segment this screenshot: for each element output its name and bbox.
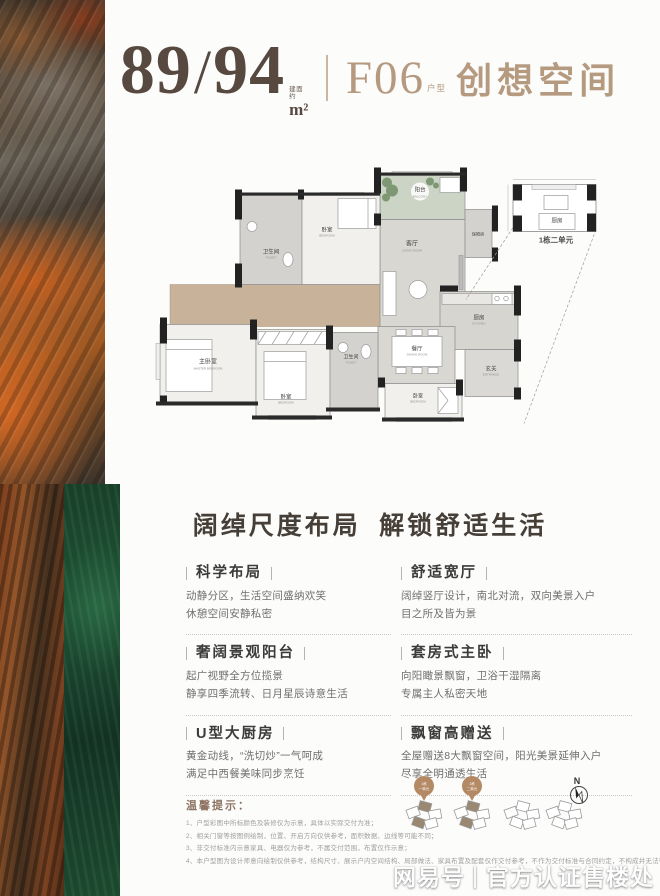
area-number-secondary: 94 xyxy=(213,36,285,106)
features-grid: 科学布局 动静分区，生活空间盛纳欢笑 休憩空间安静私密 舒适宽厅 阔绰竖厅设计，… xyxy=(186,566,632,796)
room-label-toilet-top: 卫生间 xyxy=(263,248,280,256)
svg-text:BEDROOM: BEDROOM xyxy=(278,401,294,405)
title-bar-left xyxy=(401,727,402,740)
title-bar-left xyxy=(186,727,187,740)
room-label-nanny: 保姆房 xyxy=(472,231,485,238)
area-unit-block: 建面 约 m² xyxy=(289,86,308,118)
feature-line: 满足中西餐美味同步烹饪 xyxy=(186,765,391,783)
poster: 89 / 94 建面 约 m² F06 户型 创想空间 xyxy=(0,0,660,896)
feature-line: 全屋赠送8大飘窗空间，阳光美景延伸入户 xyxy=(401,747,632,765)
building-cluster-1: 1栋 一单元 xyxy=(406,776,442,829)
building-cluster-4 xyxy=(546,801,582,830)
feature-title: U型大厨房 xyxy=(196,727,274,742)
room-label-inset-kitchen: 厨房 xyxy=(551,217,563,225)
feature-card-science-layout: 科学布局 动静分区，生活空间盛纳欢笑 休憩空间安静私密 xyxy=(186,566,391,635)
feature-line: 目之所及皆为景 xyxy=(401,605,632,623)
feature-card-u-kitchen: U型大厨房 黄金动线，“洗切炒”一气呵成 满足中西餐美味同步烹饪 xyxy=(186,727,391,796)
feature-line: 动静分区，生活空间盛纳欢笑 xyxy=(186,587,391,605)
feature-title: 科学布局 xyxy=(196,566,262,581)
svg-text:1栋: 1栋 xyxy=(469,781,475,786)
svg-text:KITCHEN: KITCHEN xyxy=(472,322,485,326)
watermark: 网易号 | 官方认证售楼处 xyxy=(393,858,654,892)
title-bar-right xyxy=(503,727,504,740)
building-cluster-2: 1栋 二单元 xyxy=(454,776,490,829)
unit-inset: 厨房 1栋二单元 xyxy=(508,180,596,245)
room-label-bedroom-mid: 卧室 xyxy=(280,393,292,401)
svg-text:ENTRANCE: ENTRANCE xyxy=(483,373,500,377)
title-bar-right xyxy=(271,567,272,580)
watermark-brand: 网易号 xyxy=(393,858,465,892)
texture-strip-top-streaks xyxy=(0,0,105,484)
unit-name: 创想空间 xyxy=(456,63,620,99)
svg-text:DINING ROOM: DINING ROOM xyxy=(407,353,428,357)
svg-text:LIVING ROOM: LIVING ROOM xyxy=(402,249,423,253)
feature-title: 飘窗高赠送 xyxy=(411,727,494,742)
unit-code-suffix: 户型 xyxy=(427,82,446,94)
feature-title: 奢阔景观阳台 xyxy=(196,646,295,661)
room-label-toilet-bottom: 卫生间 xyxy=(343,354,358,361)
compass-icon: N xyxy=(571,776,588,805)
svg-text:1栋: 1栋 xyxy=(421,781,427,786)
feature-line: 静享四季流转、日月星辰诗意生活 xyxy=(186,685,391,703)
feature-line: 向阳瞰景飘窗，卫浴干湿隔离 xyxy=(401,667,632,685)
unit-code: F06 xyxy=(346,55,425,102)
svg-text:TOILET: TOILET xyxy=(346,361,357,365)
room-label-bedroom-strip: 卧室 xyxy=(413,393,423,400)
svg-text:BALCONY: BALCONY xyxy=(413,195,427,199)
title-bar-left xyxy=(401,567,402,580)
texture-strip-bottom-green-streaks xyxy=(64,484,120,896)
watermark-text: 官方认证售楼处 xyxy=(486,858,654,892)
room-label-dining: 餐厅 xyxy=(411,345,423,353)
feature-title: 舒适宽厅 xyxy=(411,566,477,581)
feature-line: 休憩空间安静私密 xyxy=(186,605,391,623)
floorplan: 厨房 1栋二单元 阳台 BALCONY 卧室 BEDROOM 卫生间 TOILE… xyxy=(140,150,610,465)
map-pin-1: 1栋 一单元 xyxy=(414,776,434,801)
title-bar-right xyxy=(283,727,284,740)
area-number-main: 89 xyxy=(120,36,192,106)
title-bar-right xyxy=(304,647,305,660)
svg-text:N: N xyxy=(574,776,581,786)
header-divider xyxy=(326,55,328,101)
site-plan-icons: 1栋 一单元 1栋 二单元 xyxy=(403,772,593,838)
svg-text:BEDROOM: BEDROOM xyxy=(410,400,426,404)
room-label-kitchen: 厨房 xyxy=(473,314,485,322)
svg-text:MASTER BEDROOM: MASTER BEDROOM xyxy=(194,367,223,371)
feature-line: 黄金动线，“洗切炒”一气呵成 xyxy=(186,747,391,765)
section-title: 阔绰尺度布局 解锁舒适生活 xyxy=(105,506,635,542)
feature-line: 专属主人私密天地 xyxy=(401,685,632,703)
room-label-entrance: 玄关 xyxy=(485,365,497,373)
room-label-master: 主卧室 xyxy=(199,358,217,366)
title-bar-left xyxy=(186,567,187,580)
watermark-divider: | xyxy=(472,862,479,889)
room-label-balcony: 阳台 xyxy=(414,186,426,194)
feature-title: 套房式主卧 xyxy=(411,646,494,661)
feature-card-wide-hall: 舒适宽厅 阔绰竖厅设计，南北对流，双向美景入户 目之所及皆为景 xyxy=(401,566,632,635)
svg-text:一单元: 一单元 xyxy=(419,786,430,791)
title-bar-right xyxy=(503,647,504,660)
texture-strip-bottom-brown-streaks xyxy=(0,484,64,896)
area-slash: / xyxy=(194,38,211,109)
feature-line: 阔绰竖厅设计，南北对流，双向美景入户 xyxy=(401,587,632,605)
svg-text:TOILET: TOILET xyxy=(266,256,277,260)
feature-line: 起广视野全方位揽景 xyxy=(186,667,391,685)
tips-line-3: 3、非交付标准内示意家具、电器仅为参考，不属交付范围，布置仅作示意； xyxy=(186,843,656,856)
title-bar-right xyxy=(486,567,487,580)
svg-text:二单元: 二单元 xyxy=(467,786,478,791)
header: 89 / 94 建面 约 m² F06 户型 创想空间 xyxy=(105,36,635,120)
inset-caption: 1栋二单元 xyxy=(539,235,574,245)
title-bar-left xyxy=(401,647,402,660)
area-unit: m² xyxy=(289,101,308,118)
map-pin-2: 1栋 二单元 xyxy=(462,776,482,801)
feature-card-suite-master: 套房式主卧 向阳瞰景飘窗，卫浴干湿隔离 专属主人私密天地 xyxy=(401,646,632,715)
svg-text:BEDROOM: BEDROOM xyxy=(319,234,335,238)
title-bar-left xyxy=(186,647,187,660)
feature-card-balcony-view: 奢阔景观阳台 起广视野全方位揽景 静享四季流转、日月星辰诗意生活 xyxy=(186,646,391,715)
room-label-living: 客厅 xyxy=(406,240,418,248)
room-label-bedroom-top: 卧室 xyxy=(321,226,333,234)
building-cluster-3 xyxy=(504,801,540,830)
